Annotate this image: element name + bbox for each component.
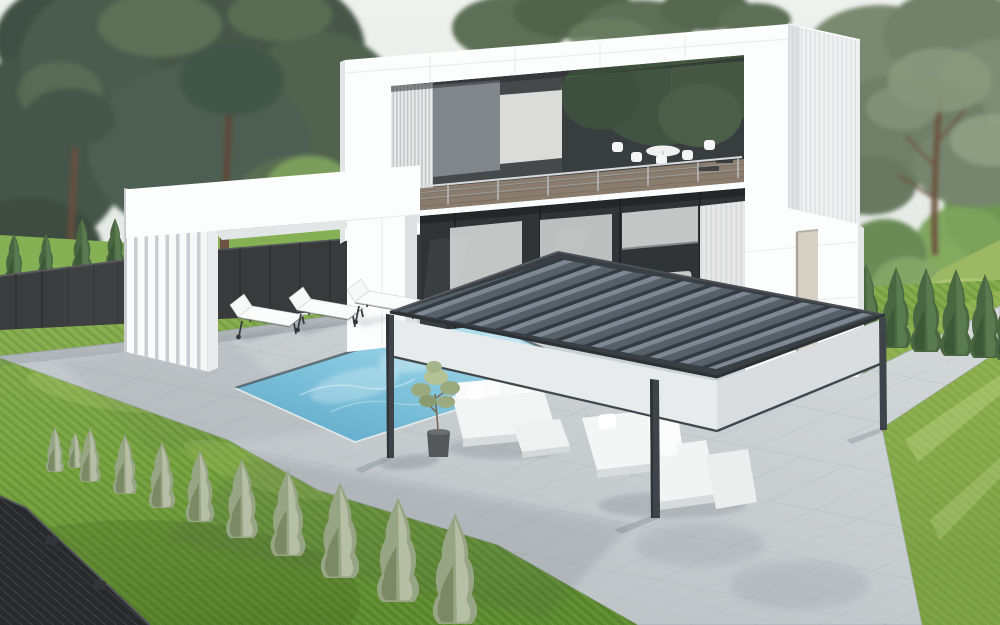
villa-exterior-render [0, 0, 1000, 625]
terrace-screen-panel [500, 90, 562, 164]
tree-shadow-dapple [635, 523, 765, 567]
tree-shadow-dapple [730, 561, 870, 609]
render-viewport: Modern white villa with swimming pool an… [0, 0, 1000, 625]
terrace-concrete-panel [433, 80, 500, 177]
ottoman [512, 419, 570, 452]
upper-side-facade [788, 24, 860, 230]
